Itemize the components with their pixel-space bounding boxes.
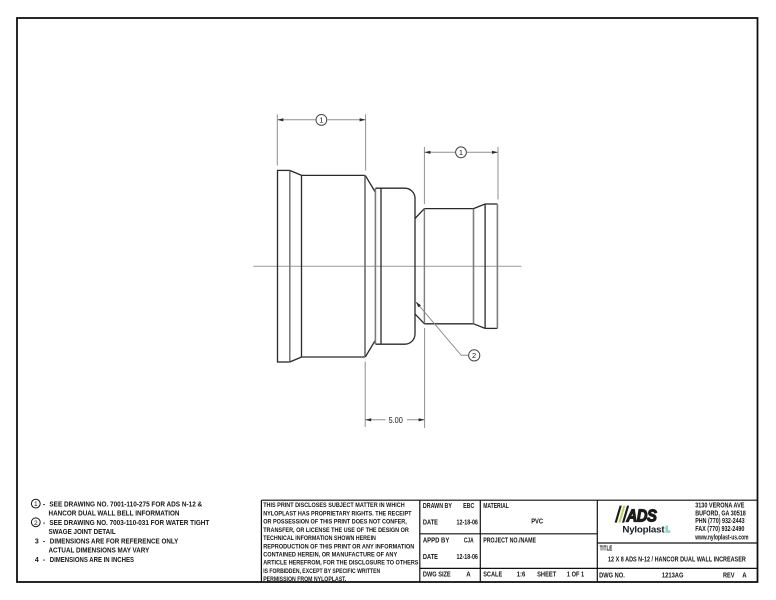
- svg-text:12-18-06: 12-18-06: [457, 554, 478, 561]
- svg-text:HANCOR DUAL WALL BELL INFORMAT: HANCOR DUAL WALL BELL INFORMATION: [49, 511, 180, 518]
- svg-text:1: 1: [34, 501, 38, 508]
- svg-text:A: A: [742, 573, 746, 580]
- svg-text:CJA: CJA: [464, 537, 474, 544]
- svg-text:www.nyloplast-us.com: www.nyloplast-us.com: [694, 535, 748, 542]
- svg-text:2: 2: [472, 351, 476, 360]
- svg-text:12-18-06: 12-18-06: [457, 520, 478, 527]
- svg-text:SHEET: SHEET: [537, 571, 557, 578]
- svg-text:SEE DRAWING NO. 7003-110-031 F: SEE DRAWING NO. 7003-110-031 FOR WATER T…: [49, 520, 210, 527]
- svg-text:1 OF 1: 1 OF 1: [567, 571, 584, 578]
- svg-text:OR POSSESSION OF THIS PRINT DO: OR POSSESSION OF THIS PRINT DOES NOT CON…: [263, 519, 407, 526]
- svg-text:ARTICLE HEREFROM, FOR THE DISC: ARTICLE HEREFROM, FOR THE DISCLOSURE TO …: [263, 560, 419, 567]
- svg-text:PHN (770) 932-2443: PHN (770) 932-2443: [695, 518, 744, 525]
- svg-text:1213AG: 1213AG: [662, 573, 684, 580]
- svg-text:BUFORD, GA 30518: BUFORD, GA 30518: [695, 510, 746, 517]
- svg-text:PVC: PVC: [531, 518, 543, 525]
- svg-text:3: 3: [35, 538, 39, 545]
- svg-text:1:6: 1:6: [517, 571, 526, 578]
- svg-text:1: 1: [459, 148, 463, 157]
- svg-text:12 X 8 ADS N-12 / HANCOR DUAL: 12 X 8 ADS N-12 / HANCOR DUAL WALL INCRE…: [608, 556, 746, 563]
- svg-text:DIMENSIONS ARE IN INCHES: DIMENSIONS ARE IN INCHES: [50, 557, 134, 564]
- svg-text:THIS PRINT DISCLOSES SUBJECT M: THIS PRINT DISCLOSES SUBJECT MATTER IN W…: [263, 502, 405, 509]
- svg-text:PROJECT NO./NAME: PROJECT NO./NAME: [483, 537, 536, 544]
- svg-text:ACTUAL DIMENSIONS MAY VARY: ACTUAL DIMENSIONS MAY VARY: [49, 548, 150, 555]
- svg-text:MATERIAL: MATERIAL: [483, 503, 509, 510]
- svg-text:2: 2: [34, 520, 38, 527]
- svg-text:1: 1: [319, 115, 323, 124]
- svg-text:5.00: 5.00: [389, 415, 403, 425]
- svg-text:TITLE: TITLE: [600, 546, 613, 553]
- svg-text:DWG SIZE: DWG SIZE: [423, 571, 451, 578]
- svg-text:CONTAINED HEREIN, OR MANUFACTU: CONTAINED HEREIN, OR MANUFACTURE OF ANY: [263, 552, 397, 559]
- svg-text:PERMISSION FROM NYLOPLAST.: PERMISSION FROM NYLOPLAST.: [263, 576, 346, 583]
- svg-text:IS FORBIDDEN, EXCEPT BY SPECIF: IS FORBIDDEN, EXCEPT BY SPECIFIC WRITTEN: [263, 568, 380, 575]
- svg-text:APPD BY: APPD BY: [423, 537, 450, 544]
- svg-text:Nyloplast: Nyloplast: [622, 524, 664, 534]
- svg-text:DATE: DATE: [423, 520, 438, 527]
- svg-text:NYLOPLAST HAS PROPRIETARY RIGH: NYLOPLAST HAS PROPRIETARY RIGHTS. THE RE…: [263, 510, 412, 517]
- svg-text:TECHNICAL INFORMATION SHOWN HE: TECHNICAL INFORMATION SHOWN HEREIN: [263, 535, 376, 542]
- svg-text:SWAGE JOINT DETAIL: SWAGE JOINT DETAIL: [49, 529, 117, 536]
- svg-text:3130 VERONA AVE: 3130 VERONA AVE: [695, 503, 744, 510]
- svg-text:FAX (770) 932-2490: FAX (770) 932-2490: [695, 526, 744, 533]
- svg-text:TRANSFER, OR LICENSE THE USE O: TRANSFER, OR LICENSE THE USE OF THE DESI…: [263, 527, 409, 534]
- svg-text:A: A: [466, 571, 470, 578]
- svg-text:ADS: ADS: [626, 506, 658, 526]
- svg-text:EBC: EBC: [463, 503, 474, 510]
- svg-text:REV: REV: [723, 573, 735, 580]
- svg-text:4: 4: [35, 557, 39, 564]
- svg-text:SCALE: SCALE: [483, 571, 502, 578]
- svg-text:DIMENSIONS ARE FOR REFERENCE O: DIMENSIONS ARE FOR REFERENCE ONLY: [50, 538, 179, 545]
- svg-text:DRAWN BY: DRAWN BY: [423, 503, 452, 510]
- svg-text:DATE: DATE: [423, 554, 438, 561]
- svg-text:DWG NO.: DWG NO.: [599, 573, 625, 580]
- svg-text:SEE DRAWING NO. 7001-110-275 F: SEE DRAWING NO. 7001-110-275 FOR ADS N-1…: [49, 501, 202, 508]
- svg-text:REPRODUCTION OF THIS PRINT OR: REPRODUCTION OF THIS PRINT OR ANY INFORM…: [263, 543, 414, 550]
